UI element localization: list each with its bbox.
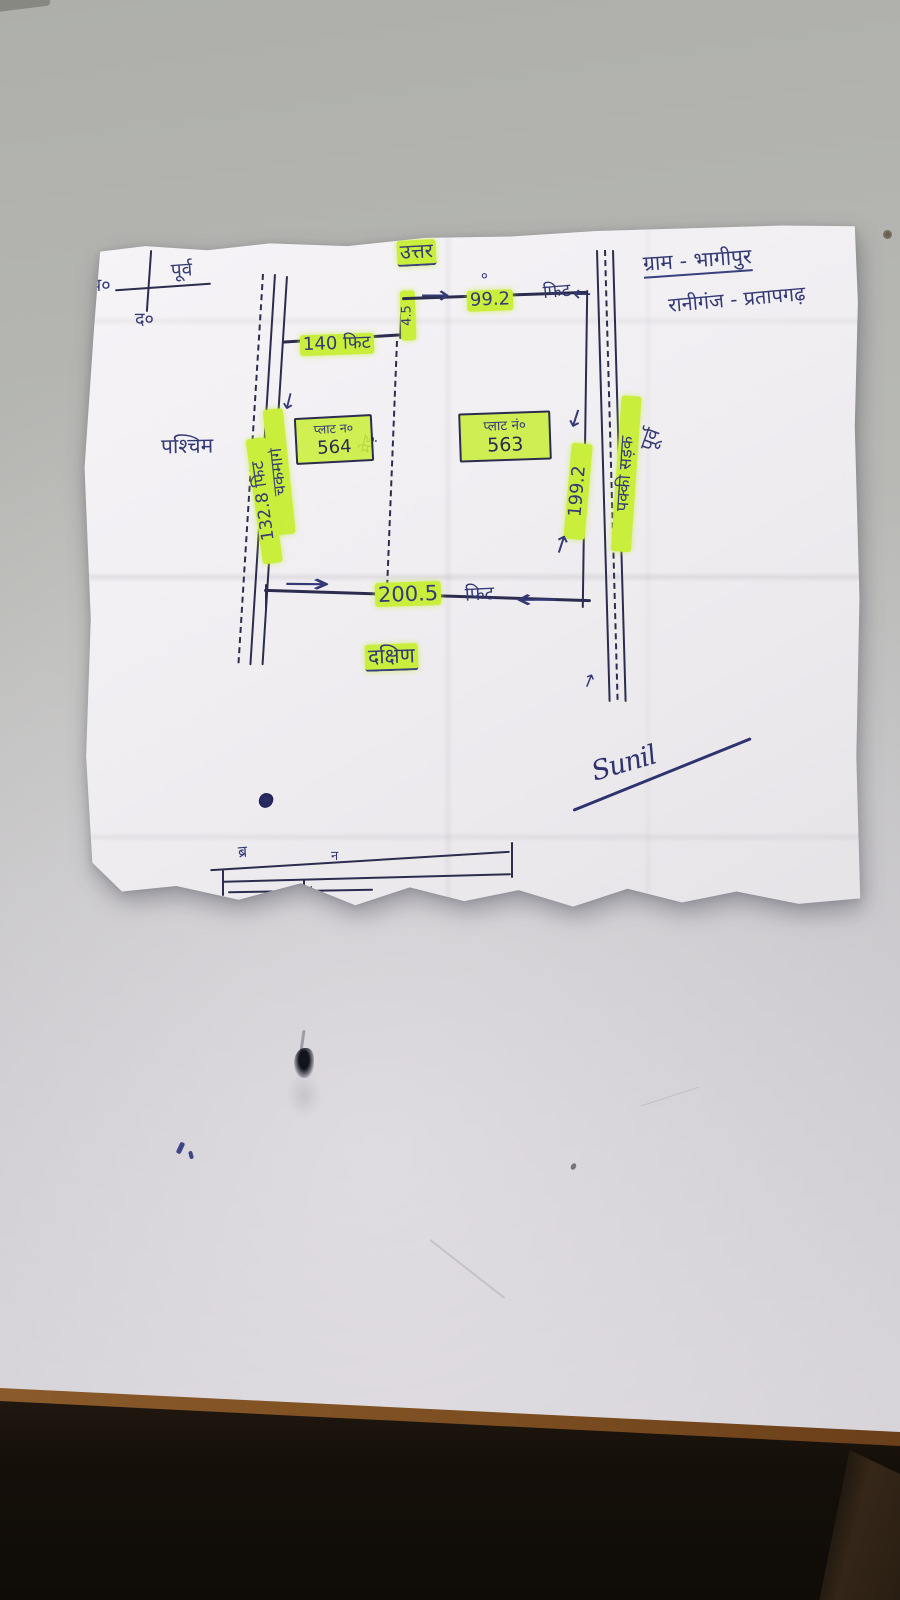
direction-west-label: पश्चिम [161, 434, 214, 459]
measure-south-unit: फिट [464, 583, 494, 606]
fragment-line-1 [210, 851, 510, 871]
compass-east-label: पूर्व [170, 259, 193, 282]
plot564-number: 564 [299, 435, 370, 460]
desk-scratch-2 [641, 1087, 698, 1106]
paper-sheet: ग्राम - भागीपुर रानीगंज - प्रतापगढ़ उ० द… [83, 220, 861, 908]
paper-surface: ग्राम - भागीपुर रानीगंज - प्रतापगढ़ उ० द… [83, 220, 861, 908]
compass-west-label: प० [91, 276, 111, 297]
blue-mark-1 [176, 1142, 186, 1155]
plot563-number: 563 [463, 433, 548, 458]
east-road-name: पक्की सड़क [611, 395, 641, 552]
measure-north-left-value: 140 [303, 333, 338, 355]
fragment-line-2 [223, 873, 511, 883]
compass-south-label: द० [135, 310, 154, 331]
fragment-tick-left [222, 870, 224, 896]
measure-north-left: 140 फिट [300, 333, 374, 356]
stray-circle-mark: ० [481, 270, 488, 285]
ink-smudge [286, 1072, 322, 1118]
south-arrow-right: → [282, 570, 331, 600]
compass-vertical-line [146, 250, 152, 312]
desk-corner-shadow [0, 0, 51, 12]
desk-speck [883, 230, 892, 239]
compass-north-label: उ० [126, 229, 147, 252]
measure-north-right-value: 99.2 [467, 289, 514, 311]
bottom-left-tick [265, 584, 267, 610]
paper-crease [83, 316, 861, 326]
ink-scribble-blob [257, 791, 274, 809]
east-road-arrow: ↑ [578, 670, 600, 695]
measure-east-value: 199.2 [564, 443, 593, 540]
fragment-char-1: ब्र [237, 843, 247, 862]
heading-village: ग्राम - भागीपुर [642, 244, 752, 279]
plot563-box: प्लाट नं० 563 [458, 410, 552, 462]
fragment-tick-right [511, 842, 513, 878]
south-arrow-left: ← [514, 586, 559, 616]
east-measure-arrow-bottom: ↑ [547, 530, 575, 562]
direction-south-label: दक्षिण [365, 643, 419, 672]
desk-speck-small [570, 1162, 578, 1171]
north-right-arrow-right: → [420, 282, 450, 310]
desk-edge-zone [0, 1380, 900, 1600]
compass-horizontal-line [115, 283, 211, 292]
measure-north-left-unit: फिट [343, 332, 371, 354]
measure-south-value: 200.5 [375, 581, 442, 607]
fragment-char-2: न [331, 850, 338, 865]
direction-north-label: उत्तर [396, 239, 436, 267]
paper-crease [443, 220, 453, 908]
fragment-tick-mid [303, 880, 305, 896]
paper-crease [83, 572, 861, 582]
plot-divider-dashed [386, 341, 398, 596]
plot564-box: प्लाट न० 564 [294, 414, 374, 465]
direction-east-label: पूर्व [636, 425, 665, 454]
paper-crease [83, 832, 861, 842]
measure-north-right-unit: फिट [542, 281, 571, 304]
heading-tehsil: रानीगंज - प्रतापगढ़ [667, 282, 806, 317]
fragment-line-3 [228, 889, 373, 894]
photo-of-plot-sketch: ग्राम - भागीपुर रानीगंज - प्रतापगढ़ उ० द… [0, 0, 900, 1600]
blue-mark-2 [188, 1151, 194, 1160]
paper-crease [643, 220, 653, 908]
desk-scratch-1 [430, 1239, 506, 1299]
north-right-arrow-left: ← [573, 282, 591, 307]
fragment-char-3: H [304, 885, 313, 899]
